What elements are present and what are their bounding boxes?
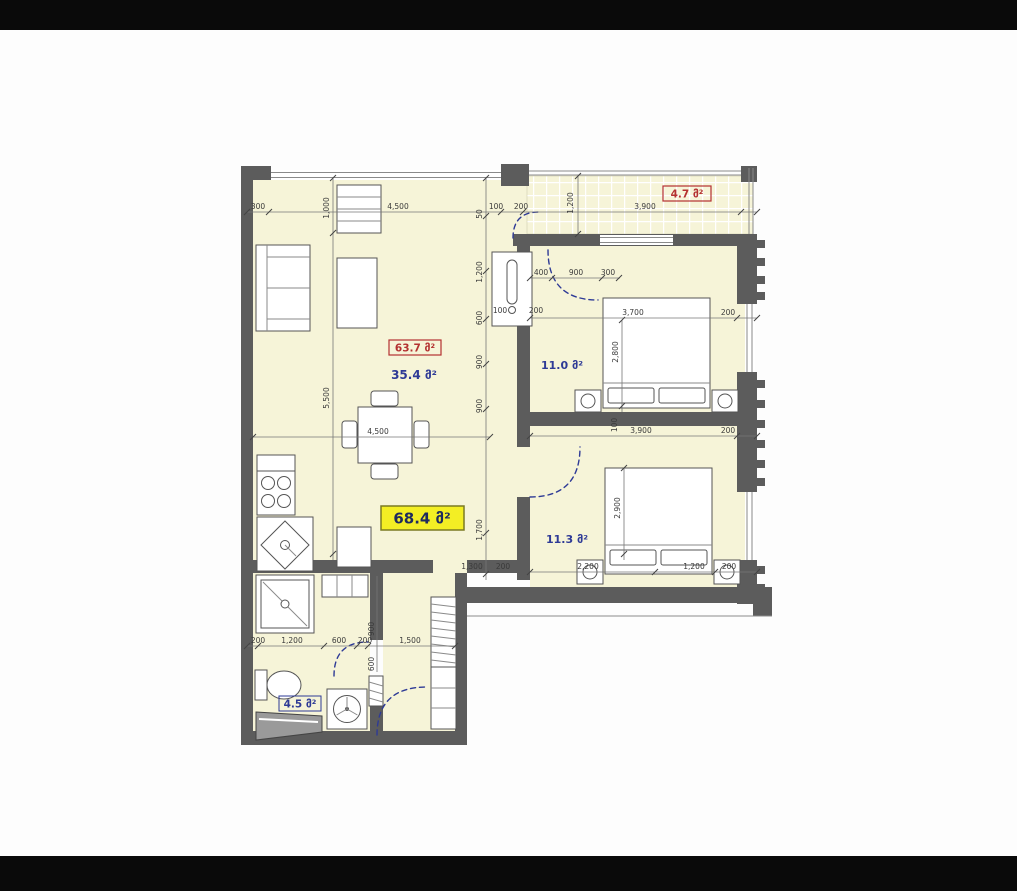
dim-label: 4,500 [367,427,389,436]
photo-of-floor-plan: 300 4,500 100 200 3,900 1,200 1,000 5,50… [0,0,1017,891]
window-bedroom1-north [600,235,673,245]
wall-right-block-a [737,234,757,304]
dim-label: 4,500 [387,202,409,211]
letterbox-bottom [0,856,1017,891]
living-area-label: 35.4 მ² [391,368,437,382]
dim-label: 300 [601,268,616,277]
dim-label: 3,900 [630,426,652,435]
dim-label: 900 [475,355,484,370]
dim-label: 50 [475,209,484,219]
dim-label: 600 [367,657,376,672]
dim-label: 200 [722,562,737,571]
dim-label: 1,200 [475,261,484,283]
dim-label: 1,700 [475,519,484,541]
bathroom-area-label: 4.5 მ² [284,699,317,711]
fridge [337,527,371,567]
bathroom-shelf [322,575,368,597]
console-table [337,258,377,328]
window-living-top [271,170,501,180]
kitchen-counter [257,455,295,471]
dim-label: 900 [569,268,584,277]
dim-label: 1,200 [281,636,303,645]
dim-label: 2,200 [577,562,599,571]
dim-label: 200 [721,308,736,317]
dim-label: 400 [534,268,549,277]
dim-label: 600 [475,311,484,326]
dim-label: 1,300 [461,562,483,571]
chair-right [414,421,429,448]
dim-label: 200 [251,636,266,645]
total-area-yellow: 68.4 მ² [393,510,450,528]
dim-label: 2,900 [613,497,622,519]
washing-machine [327,689,367,729]
floor-plan-drawing: 300 4,500 100 200 3,900 1,200 1,000 5,50… [0,0,1017,891]
dim-label: 100 [489,202,504,211]
stove [257,471,295,515]
dim-label: 1,200 [566,192,575,214]
wall-between-bedrooms [530,412,757,426]
dim-label: 200 [358,636,373,645]
balcony-area-label: 4.7 მ² [671,189,704,201]
pillow [608,388,654,403]
dim-label: 200 [721,426,736,435]
chair-left [342,421,357,448]
wall-right-block-b [737,372,757,492]
total-area-red: 63.7 მ² [395,343,436,355]
dim-label: 900 [475,399,484,414]
wall-bedroom2-south [467,587,757,603]
chair-top [371,391,398,406]
dim-label: 1,200 [683,562,705,571]
bedroom2-area-label: 11.3 მ² [546,533,588,546]
pillow [610,550,656,565]
hall-shelving [431,597,456,729]
dim-label: 3,700 [622,308,644,317]
dim-label: 200 [514,202,529,211]
dim-label: 5,500 [322,387,331,409]
door-grille [369,676,383,706]
dim-label: 900 [367,622,376,637]
wall-hall-east [455,573,467,743]
chair-bottom [371,464,398,479]
lamp [718,394,732,408]
wall-hall-north [383,560,433,573]
dim-label: 200 [496,562,511,571]
dim-label: 2,800 [611,341,620,363]
shelf-unit [337,185,381,233]
lamp [581,394,595,408]
wall-left [241,166,253,745]
sofa [256,245,310,331]
dim-label: 1,000 [322,197,331,219]
dim-label: 300 [251,202,266,211]
pillow [659,388,705,403]
corner-sink [257,517,313,571]
dim-label: 3,900 [634,202,656,211]
dim-label: 100 [493,306,508,315]
wall-column-top-mid [501,164,529,186]
bedroom1-area-label: 11.0 მ² [541,359,583,372]
shower [256,575,314,633]
dim-label: 1,500 [399,636,421,645]
dim-label: 100 [610,418,619,433]
dim-label: 200 [529,306,544,315]
dim-label: 600 [332,636,347,645]
letterbox-top [0,0,1017,30]
hall-cabinet [431,667,456,729]
wall-corner-tl [241,166,271,180]
